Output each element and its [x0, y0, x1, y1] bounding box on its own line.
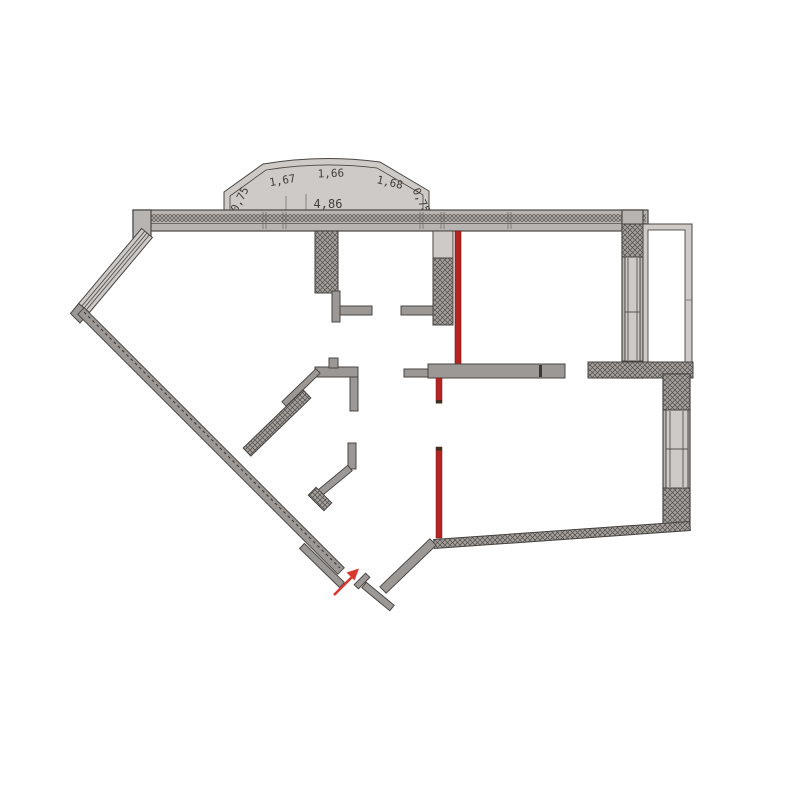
partition-column-right-top — [433, 231, 453, 259]
inner-room-right-stub-lower — [348, 443, 356, 469]
right-upper-window — [625, 257, 640, 361]
inner-room-hatched-partition — [243, 390, 311, 456]
red-line-end-tick-upper — [436, 400, 442, 404]
southwest-wall-centerline — [84, 312, 340, 568]
middle-wall-left-piece — [404, 369, 428, 377]
red-partition-line-1 — [455, 231, 461, 368]
entrance-east-wall — [380, 539, 436, 593]
right-lower-wall-hatch-top — [663, 374, 690, 410]
southwest-exterior-wall — [78, 308, 345, 588]
partition-columns — [315, 231, 453, 325]
red-partition-line-2-upper — [436, 378, 442, 403]
southwest-wall-band — [78, 308, 344, 574]
right-lower-wall — [663, 374, 690, 528]
inner-room-top-stub — [329, 358, 338, 368]
floor-plan-page: 0,75 1,67 1,66 1,68 0,75 4,86 — [0, 0, 800, 800]
partition-stub-left-vertical — [332, 291, 340, 322]
partition-stub-right-horizontal — [401, 306, 433, 315]
partition-column-left — [315, 231, 338, 293]
red-partition-line-2-lower — [436, 447, 442, 538]
middle-partition — [404, 364, 565, 538]
dimension-label: 1,66 — [317, 167, 344, 181]
total-width-label: 4,86 — [314, 197, 343, 211]
top-wall-hatch-texture — [135, 214, 646, 222]
bottom-exterior-wall — [434, 522, 691, 549]
entrance-arrow-head — [347, 569, 360, 581]
loggia-interior — [648, 230, 685, 362]
red-line-end-tick-lower — [436, 447, 442, 451]
partition-column-right — [433, 258, 453, 325]
loggia — [643, 224, 692, 364]
top-exterior-wall — [133, 210, 648, 239]
right-upper-wall — [622, 210, 643, 378]
middle-wall-tick — [539, 365, 542, 377]
left-window-glazing-lines — [82, 231, 150, 310]
middle-wall-band — [428, 364, 565, 378]
entrance-doorway — [334, 539, 436, 611]
right-upper-wall-hatch-top — [622, 224, 643, 257]
inner-room-right-stub-upper — [350, 377, 358, 411]
floor-plan: 0,75 1,67 1,66 1,68 0,75 4,86 — [0, 0, 800, 800]
partition-stub-left-horizontal — [340, 306, 372, 315]
